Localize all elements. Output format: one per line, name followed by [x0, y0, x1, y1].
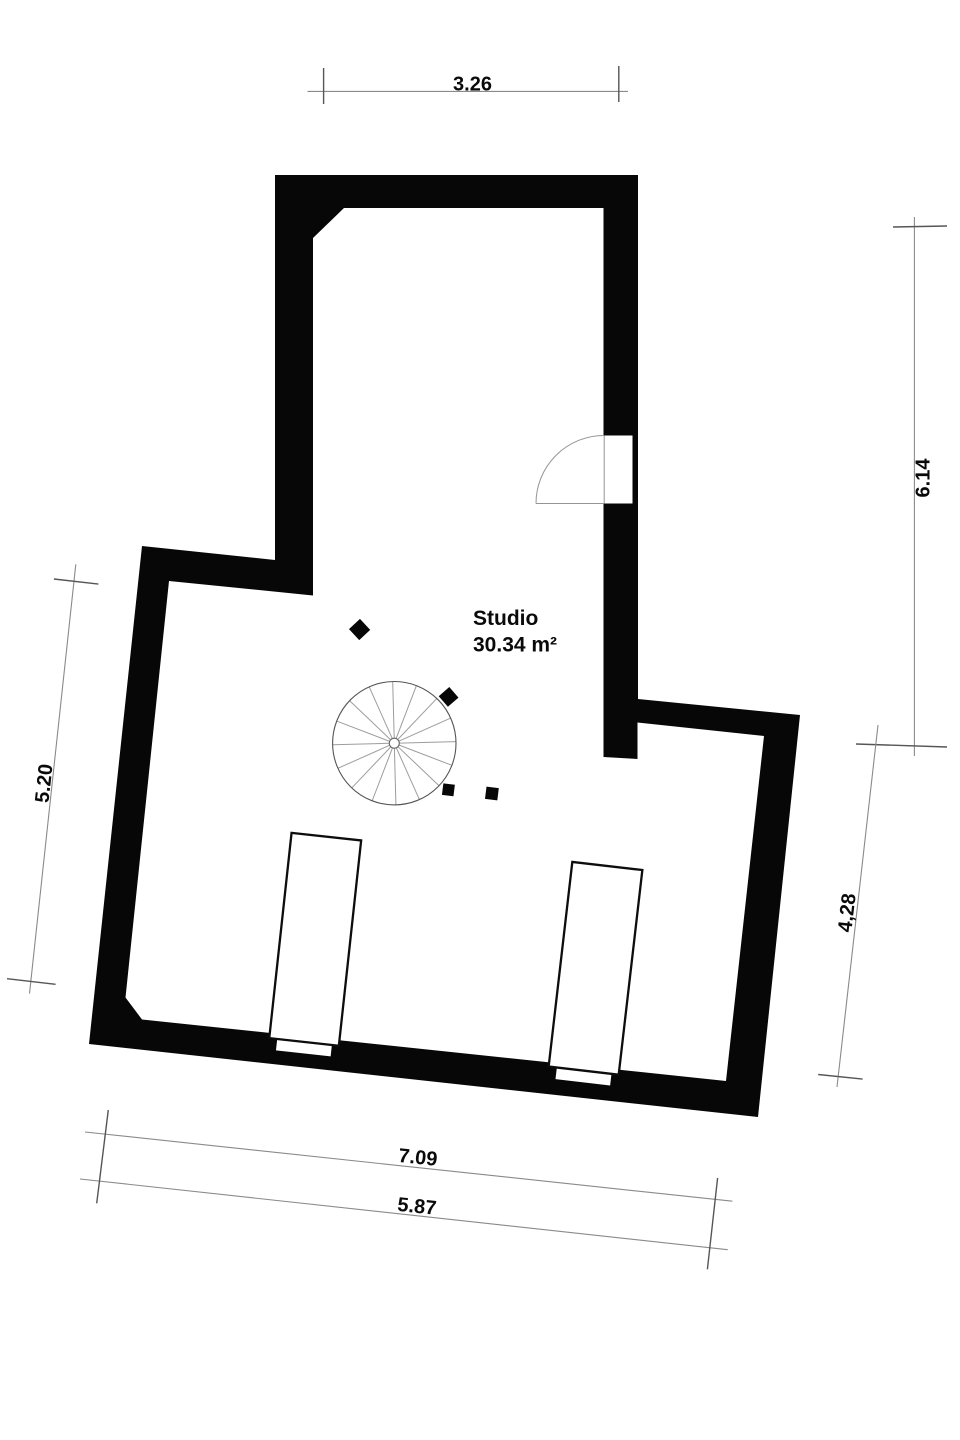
svg-text:7.09: 7.09	[397, 1145, 438, 1171]
svg-text:5.20: 5.20	[32, 763, 58, 804]
svg-text:3.26: 3.26	[453, 74, 492, 96]
svg-text:30.34 m²: 30.34 m²	[473, 633, 557, 656]
svg-text:4,28: 4,28	[834, 892, 860, 933]
svg-text:6.14: 6.14	[913, 458, 935, 498]
svg-text:Studio: Studio	[473, 607, 538, 630]
svg-text:5.87: 5.87	[396, 1194, 437, 1220]
